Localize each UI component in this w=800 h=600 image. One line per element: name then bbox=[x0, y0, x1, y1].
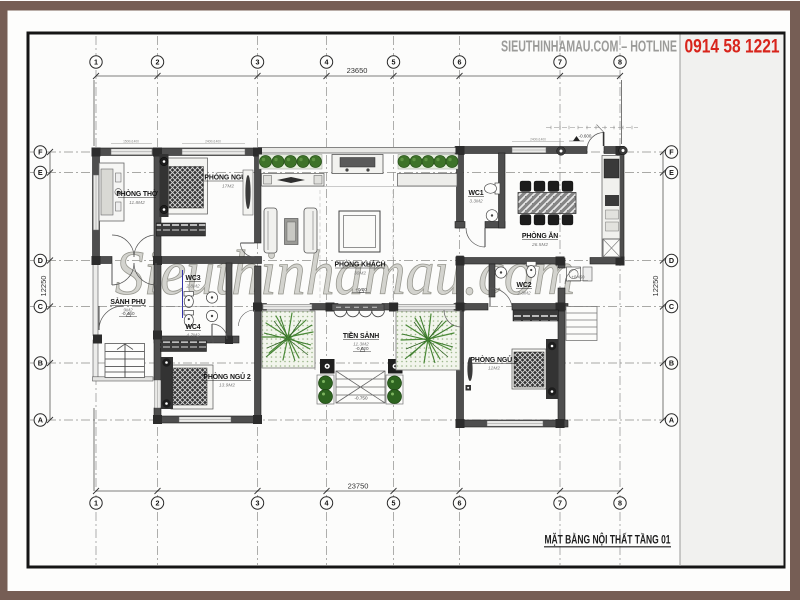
svg-text:-0.750: -0.750 bbox=[354, 396, 367, 401]
svg-text:4: 4 bbox=[325, 58, 329, 67]
svg-text:12250: 12250 bbox=[39, 276, 48, 297]
svg-text:PHÒNG NGỦ 3: PHÒNG NGỦ 3 bbox=[470, 355, 517, 364]
svg-text:3: 3 bbox=[256, 58, 260, 67]
svg-text:13.9M2: 13.9M2 bbox=[219, 383, 235, 389]
svg-text:7: 7 bbox=[558, 58, 562, 67]
svg-text:F: F bbox=[669, 148, 674, 157]
svg-text:WC4: WC4 bbox=[185, 324, 200, 331]
svg-text:11.8M2: 11.8M2 bbox=[129, 200, 145, 206]
svg-text:B: B bbox=[669, 359, 674, 368]
svg-text:1: 1 bbox=[94, 499, 98, 508]
svg-text:D: D bbox=[38, 256, 43, 265]
svg-text:2.8M2: 2.8M2 bbox=[185, 284, 200, 290]
svg-text:A: A bbox=[38, 416, 43, 425]
svg-text:1: 1 bbox=[94, 58, 98, 67]
svg-text:17M2: 17M2 bbox=[222, 184, 234, 190]
svg-text:2400x1400: 2400x1400 bbox=[530, 138, 546, 142]
svg-text:WC1: WC1 bbox=[468, 190, 483, 197]
svg-text:23750: 23750 bbox=[348, 482, 369, 491]
svg-text:PHÒNG THỜ: PHÒNG THỜ bbox=[116, 189, 158, 198]
svg-text:1500x1400: 1500x1400 bbox=[123, 140, 139, 144]
svg-text:WC2: WC2 bbox=[516, 282, 531, 289]
svg-text:4.7M2: 4.7M2 bbox=[186, 333, 200, 339]
svg-text:7: 7 bbox=[558, 499, 562, 508]
svg-text:6: 6 bbox=[458, 58, 462, 67]
svg-text:3.3M2: 3.3M2 bbox=[469, 199, 483, 205]
svg-text:-0.600: -0.600 bbox=[579, 134, 592, 139]
svg-text:30M2: 30M2 bbox=[354, 271, 366, 277]
svg-text:8: 8 bbox=[618, 499, 622, 508]
svg-text:C: C bbox=[669, 302, 674, 311]
svg-text:A: A bbox=[669, 416, 674, 425]
svg-text:8: 8 bbox=[618, 58, 622, 67]
svg-text:PHÒNG NGỦ 2: PHÒNG NGỦ 2 bbox=[203, 372, 250, 381]
svg-text:PHÒNG ĂN: PHÒNG ĂN bbox=[522, 231, 558, 240]
svg-text:C: C bbox=[38, 302, 43, 311]
svg-text:B: B bbox=[38, 359, 43, 368]
svg-text:E: E bbox=[669, 168, 674, 177]
svg-text:2400x1400: 2400x1400 bbox=[205, 140, 221, 144]
svg-text:MẶT BẰNG NỘI THẤT TẦNG 01: MẶT BẰNG NỘI THẤT TẦNG 01 bbox=[545, 534, 671, 547]
svg-text:SẢNH PHỤ: SẢNH PHỤ bbox=[110, 297, 145, 306]
svg-text:SIEUTHINHAMAU.COM – HOTLINE: SIEUTHINHAMAU.COM – HOTLINE bbox=[501, 39, 677, 56]
svg-text:5: 5 bbox=[392, 58, 396, 67]
svg-text:F: F bbox=[38, 148, 43, 157]
svg-text:+0.450: +0.450 bbox=[572, 275, 586, 280]
svg-text:3: 3 bbox=[256, 499, 260, 508]
svg-text:26.5M2: 26.5M2 bbox=[531, 242, 548, 248]
svg-text:WC3: WC3 bbox=[185, 275, 200, 282]
svg-text:2: 2 bbox=[156, 58, 160, 67]
svg-text:9M2: 9M2 bbox=[123, 308, 133, 314]
svg-text:2.8M2: 2.8M2 bbox=[516, 291, 531, 297]
svg-text:+0.00: +0.00 bbox=[355, 287, 367, 292]
svg-text:11.3M2: 11.3M2 bbox=[353, 342, 369, 348]
svg-text:5: 5 bbox=[392, 499, 396, 508]
svg-text:D: D bbox=[669, 256, 674, 265]
svg-text:23650: 23650 bbox=[347, 66, 368, 75]
svg-text:2: 2 bbox=[156, 499, 160, 508]
svg-text:12M2: 12M2 bbox=[488, 366, 500, 372]
svg-text:E: E bbox=[38, 168, 43, 177]
svg-text:4: 4 bbox=[325, 499, 329, 508]
svg-text:12250: 12250 bbox=[651, 276, 660, 297]
svg-text:0914 58 1221: 0914 58 1221 bbox=[685, 37, 780, 58]
svg-text:PHÒNG KHÁCH: PHÒNG KHÁCH bbox=[335, 260, 386, 269]
svg-text:6: 6 bbox=[458, 499, 462, 508]
